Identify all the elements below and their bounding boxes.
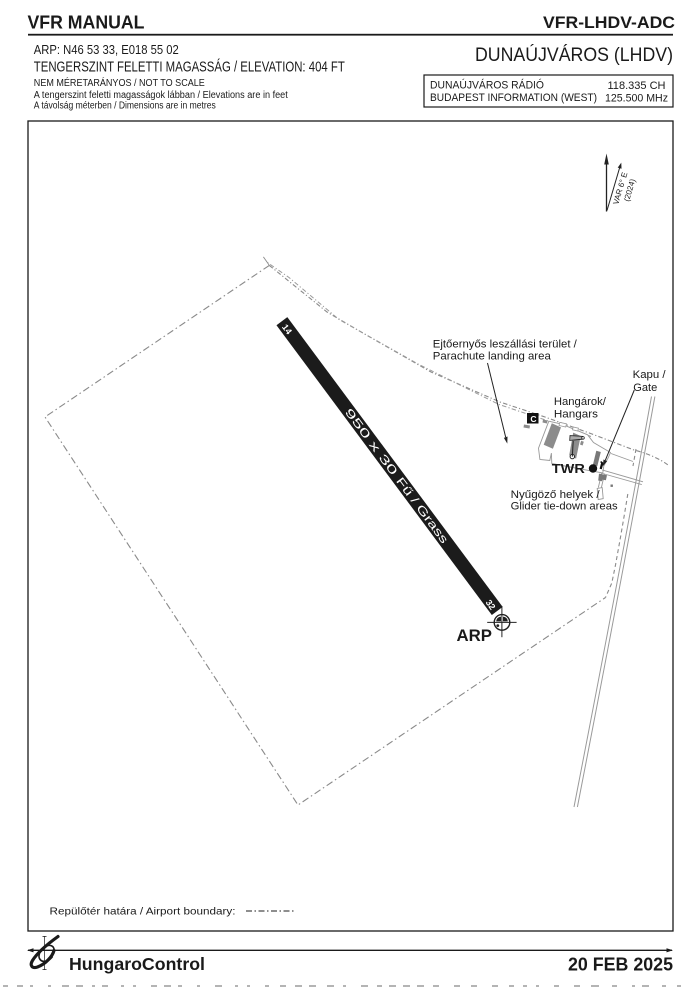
svg-text:A tengerszint feletti magasság: A tengerszint feletti magasságok lábban … (34, 90, 288, 101)
svg-text:20 FEB 2025: 20 FEB 2025 (568, 955, 673, 975)
svg-text:Hangars: Hangars (554, 408, 599, 420)
svg-text:TENGERSZINT FELETTI MAGASSÁG /: TENGERSZINT FELETTI MAGASSÁG / ELEVATION… (34, 58, 345, 75)
svg-text:TWR: TWR (552, 461, 586, 476)
svg-text:Ejtőernyős leszállási terület: Ejtőernyős leszállási terület / (433, 339, 578, 351)
svg-text:DUNAÚJVÁROS RÁDIÓ: DUNAÚJVÁROS RÁDIÓ (430, 79, 544, 92)
svg-text:ARP: N46 53 33, E018 55 02: ARP: N46 53 33, E018 55 02 (34, 42, 179, 57)
svg-text:118.335 CH: 118.335 CH (608, 80, 666, 92)
svg-text:Nyűgöző helyek /: Nyűgöző helyek / (511, 489, 601, 501)
svg-text:Fű / Grass: Fű / Grass (393, 476, 450, 547)
svg-text:Parachute landing area: Parachute landing area (433, 351, 552, 363)
svg-text:DUNAÚJVÁROS (LHDV): DUNAÚJVÁROS (LHDV) (475, 43, 673, 66)
svg-text:Hangárok/: Hangárok/ (554, 396, 607, 408)
svg-text:A távolság méterben / Dimensio: A távolság méterben / Dimensions are in … (34, 101, 216, 112)
svg-text:950 x 30: 950 x 30 (342, 407, 399, 478)
svg-text:ARP: ARP (457, 627, 493, 645)
svg-text:NEM MÉRETARÁNYOS / NOT TO SCAL: NEM MÉRETARÁNYOS / NOT TO SCALE (34, 76, 205, 89)
svg-text:125.500 MHz: 125.500 MHz (605, 93, 668, 105)
svg-text:VFR MANUAL: VFR MANUAL (28, 13, 145, 33)
svg-text:Gate: Gate (633, 382, 657, 394)
svg-text:Glider tie-down areas: Glider tie-down areas (511, 501, 618, 513)
svg-text:C: C (530, 414, 536, 424)
svg-text:Repülőtér határa / Airport bou: Repülőtér határa / Airport boundary: (50, 907, 236, 918)
svg-text:HungaroControl: HungaroControl (69, 954, 205, 974)
svg-text:VFR-LHDV-ADC: VFR-LHDV-ADC (543, 14, 675, 32)
svg-text:Kapu /: Kapu / (633, 369, 667, 381)
svg-text:BUDAPEST INFORMATION (WEST): BUDAPEST INFORMATION (WEST) (430, 92, 597, 104)
